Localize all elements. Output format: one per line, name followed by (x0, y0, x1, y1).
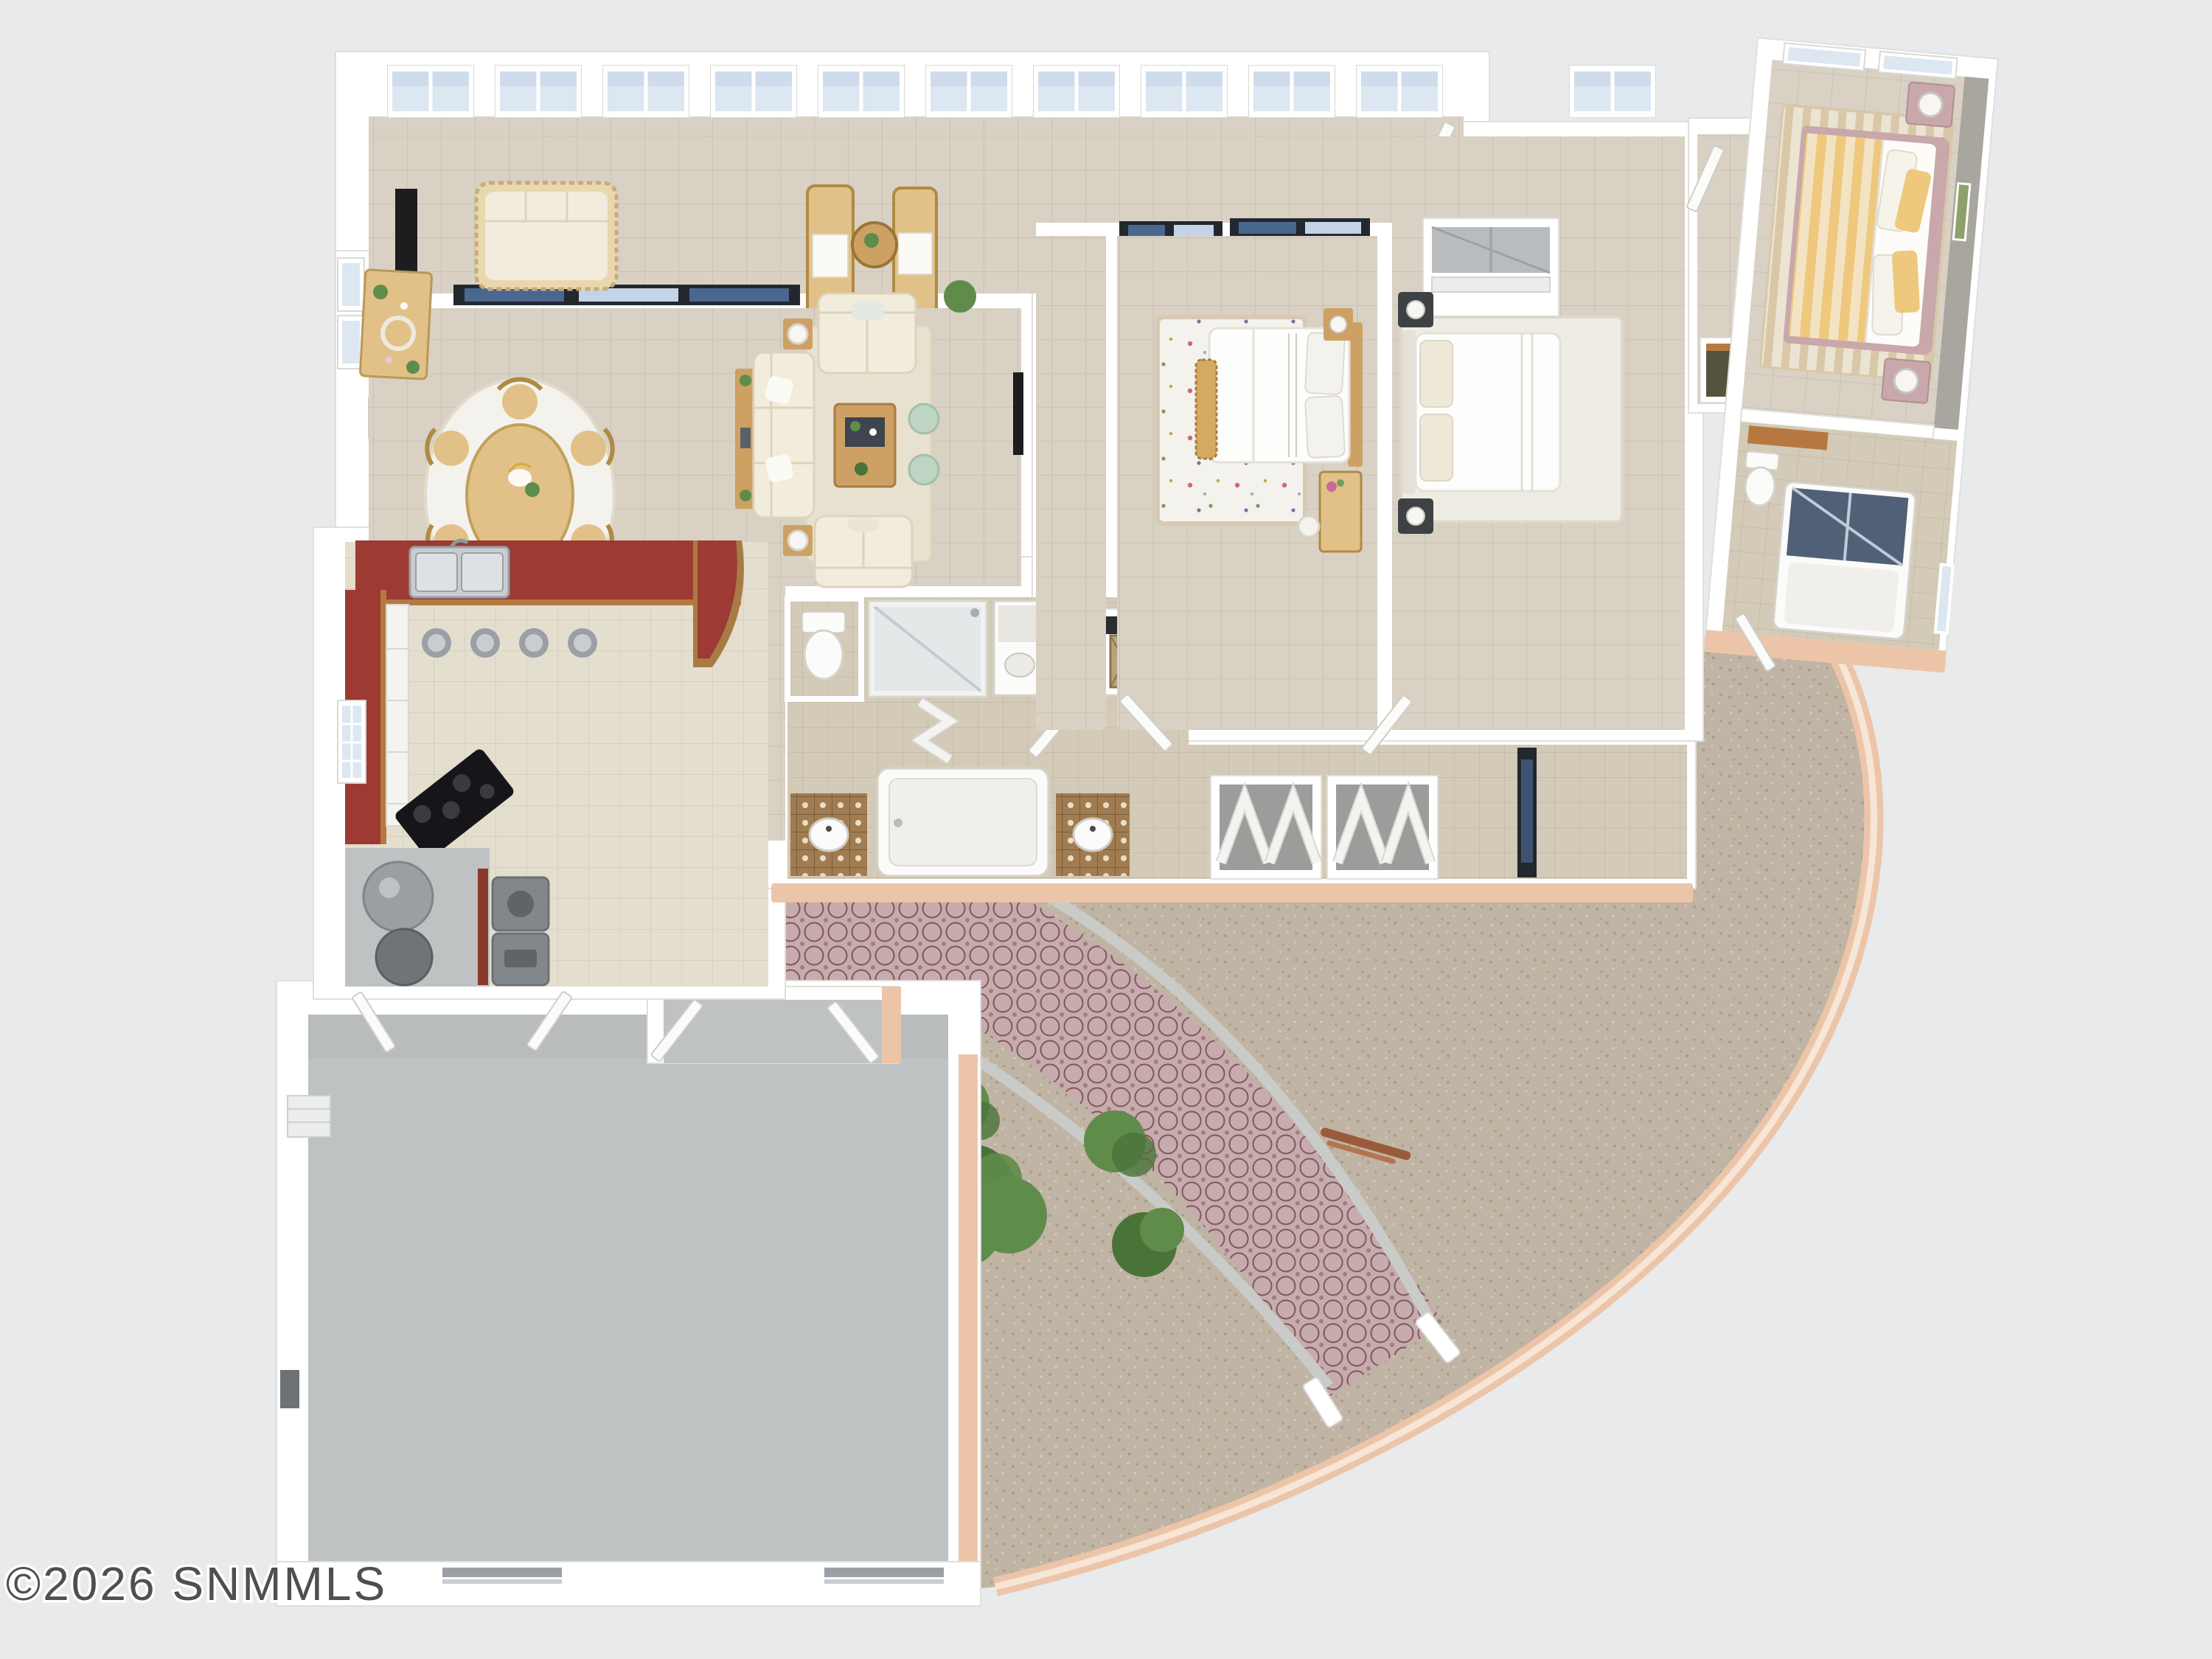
coffee-table (835, 404, 895, 487)
loveseat-top (818, 293, 916, 373)
nightstand-3a (1906, 82, 1955, 127)
bathtub (877, 768, 1048, 876)
garage-door-sill-2 (824, 1568, 944, 1577)
garage-door-sill-1 (442, 1568, 562, 1577)
shower (869, 601, 987, 697)
garage-floor (308, 1015, 948, 1562)
kitchen-west-window (338, 700, 366, 783)
hall-closet-1 (1211, 776, 1321, 879)
bath3-tub (1773, 481, 1916, 640)
bed-2 (1402, 330, 1560, 494)
hall-floor (1036, 236, 1106, 730)
garage-dark-item (280, 1370, 299, 1408)
sunroom-sofa (476, 183, 616, 289)
sink-1 (810, 818, 848, 851)
kitchen-cabinets-west (386, 605, 408, 826)
loveseat-bottom (815, 516, 912, 587)
side-table-lamp-2 (783, 525, 813, 556)
dryer (493, 933, 549, 985)
washer (493, 877, 549, 931)
laundry-door-red (478, 869, 488, 985)
bedroom2-closet (1423, 218, 1559, 321)
living-plant (944, 280, 976, 313)
water-heater-2 (376, 929, 432, 985)
south-peach-skirt (771, 883, 1693, 902)
bedroom-3 (1742, 42, 1991, 430)
bed-3 (1783, 125, 1950, 355)
water-heater-1 (364, 862, 433, 931)
sofa (754, 352, 814, 518)
floor-plan-image: ©2026 SNMMLS (0, 0, 2212, 1659)
alcove-peach-wall (882, 987, 901, 1063)
pouf-2 (909, 455, 939, 484)
nightstand-3b (1882, 358, 1931, 403)
bedroom-2 (1362, 136, 1685, 755)
sunroom-fireplace (395, 189, 417, 276)
garage (276, 981, 981, 1606)
nightstand-1 (1324, 308, 1353, 341)
watermark: ©2026 SNMMLS (6, 1557, 387, 1610)
nightstand-2b (1398, 498, 1433, 534)
sink-2 (1074, 818, 1112, 851)
bedroom2-north-window (1569, 65, 1656, 118)
kitchen-sink (410, 540, 509, 597)
pouf-1 (909, 404, 939, 434)
bed2-headboard (1402, 330, 1416, 494)
side-table-lamp-1 (783, 319, 813, 349)
tv-panel (1013, 372, 1023, 455)
garage-shelf (288, 1096, 330, 1137)
bed-1 (1209, 322, 1363, 467)
desk-stool (1298, 516, 1319, 537)
toilet-room (787, 599, 861, 699)
hall-closet-2 (1327, 776, 1438, 879)
bed1-bench (1196, 360, 1217, 459)
garage-east-wall (959, 1054, 978, 1587)
sideboard (360, 270, 431, 380)
bedroom-1 (1117, 236, 1377, 751)
nightstand-2a (1398, 292, 1433, 327)
